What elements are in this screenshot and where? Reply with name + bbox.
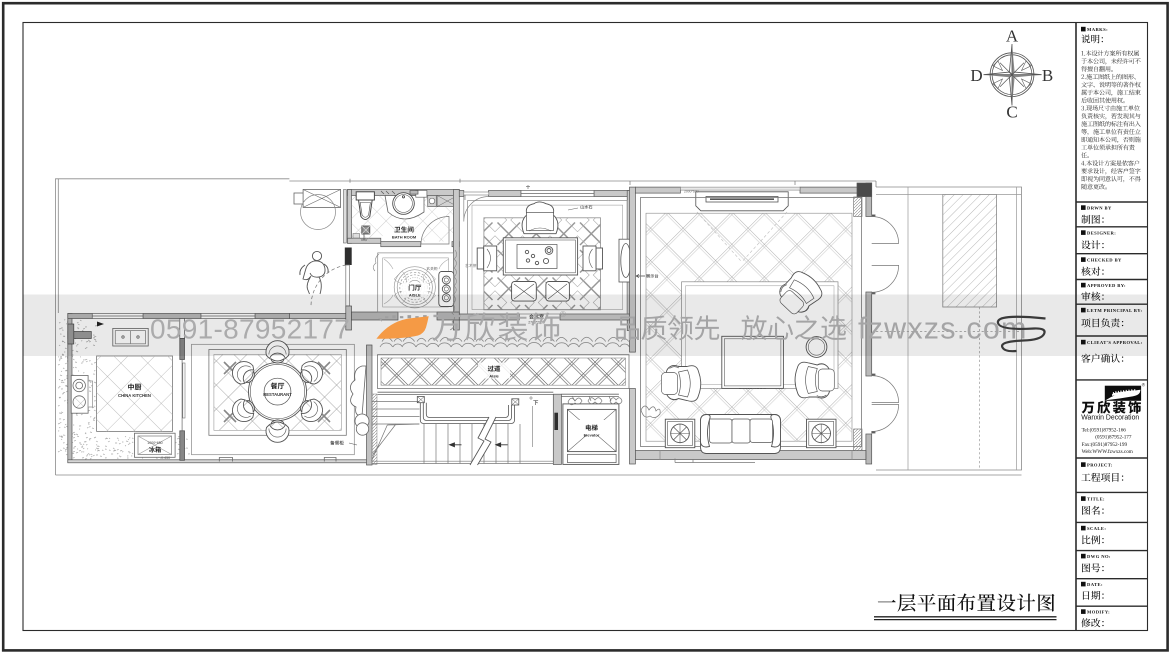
svg-text:®: ®	[1142, 382, 1146, 388]
svg-text:DESIGNER:: DESIGNER:	[1087, 231, 1116, 236]
svg-text:MODIFY:: MODIFY:	[1087, 610, 1110, 615]
svg-text:LETM PRINCIPAL BY:: LETM PRINCIPAL BY:	[1087, 308, 1143, 313]
svg-text:Web:WWW.fzwxzs.com: Web:WWW.fzwxzs.com	[1082, 448, 1133, 455]
svg-text:fzwxzs.com: fzwxzs.com	[858, 312, 1028, 346]
svg-text:Aisle: Aisle	[489, 374, 499, 379]
svg-text:-0.450: -0.450	[160, 456, 170, 460]
svg-text:0591-87952177: 0591-87952177	[150, 314, 350, 345]
svg-text:CHECKED BY: CHECKED BY	[1087, 258, 1122, 263]
svg-text:D: D	[970, 66, 982, 85]
svg-text:CLIEAT'S APPROVAL:: CLIEAT'S APPROVAL:	[1087, 340, 1143, 345]
svg-text:APPROVED BY:: APPROVED BY:	[1087, 283, 1126, 288]
svg-text:2000*600: 2000*600	[684, 190, 699, 194]
svg-text:CHINA KITCHEN: CHINA KITCHEN	[118, 393, 151, 398]
svg-text:BATH ROOM: BATH ROOM	[392, 235, 417, 240]
svg-text:A: A	[1006, 27, 1019, 46]
svg-text:DRWN BY: DRWN BY	[1087, 206, 1112, 211]
svg-text:DWG NO:: DWG NO:	[1087, 554, 1111, 559]
svg-text:C: C	[1006, 103, 1017, 122]
svg-text:Fax:(0591)87952-199: Fax:(0591)87952-199	[1082, 441, 1128, 448]
svg-text:Wanxin Decoration: Wanxin Decoration	[1081, 415, 1139, 422]
svg-text:1000*650: 1000*650	[147, 441, 162, 445]
svg-text:PROJECT:: PROJECT:	[1087, 463, 1113, 468]
svg-text:TITLE:: TITLE:	[1087, 497, 1105, 502]
svg-text:®: ®	[560, 310, 566, 319]
svg-text:Elevator: Elevator	[584, 433, 600, 438]
svg-text:DATE:: DATE:	[1087, 582, 1103, 587]
svg-text:MARKS:: MARKS:	[1087, 27, 1108, 32]
svg-text:B: B	[1042, 66, 1053, 85]
svg-text:SCALE:: SCALE:	[1087, 526, 1106, 531]
svg-text:Tel:(0591)87952-166: Tel:(0591)87952-166	[1082, 426, 1127, 433]
svg-text:(0591)87952-177: (0591)87952-177	[1095, 434, 1132, 441]
svg-text:RESTAURANT: RESTAURANT	[263, 392, 292, 397]
